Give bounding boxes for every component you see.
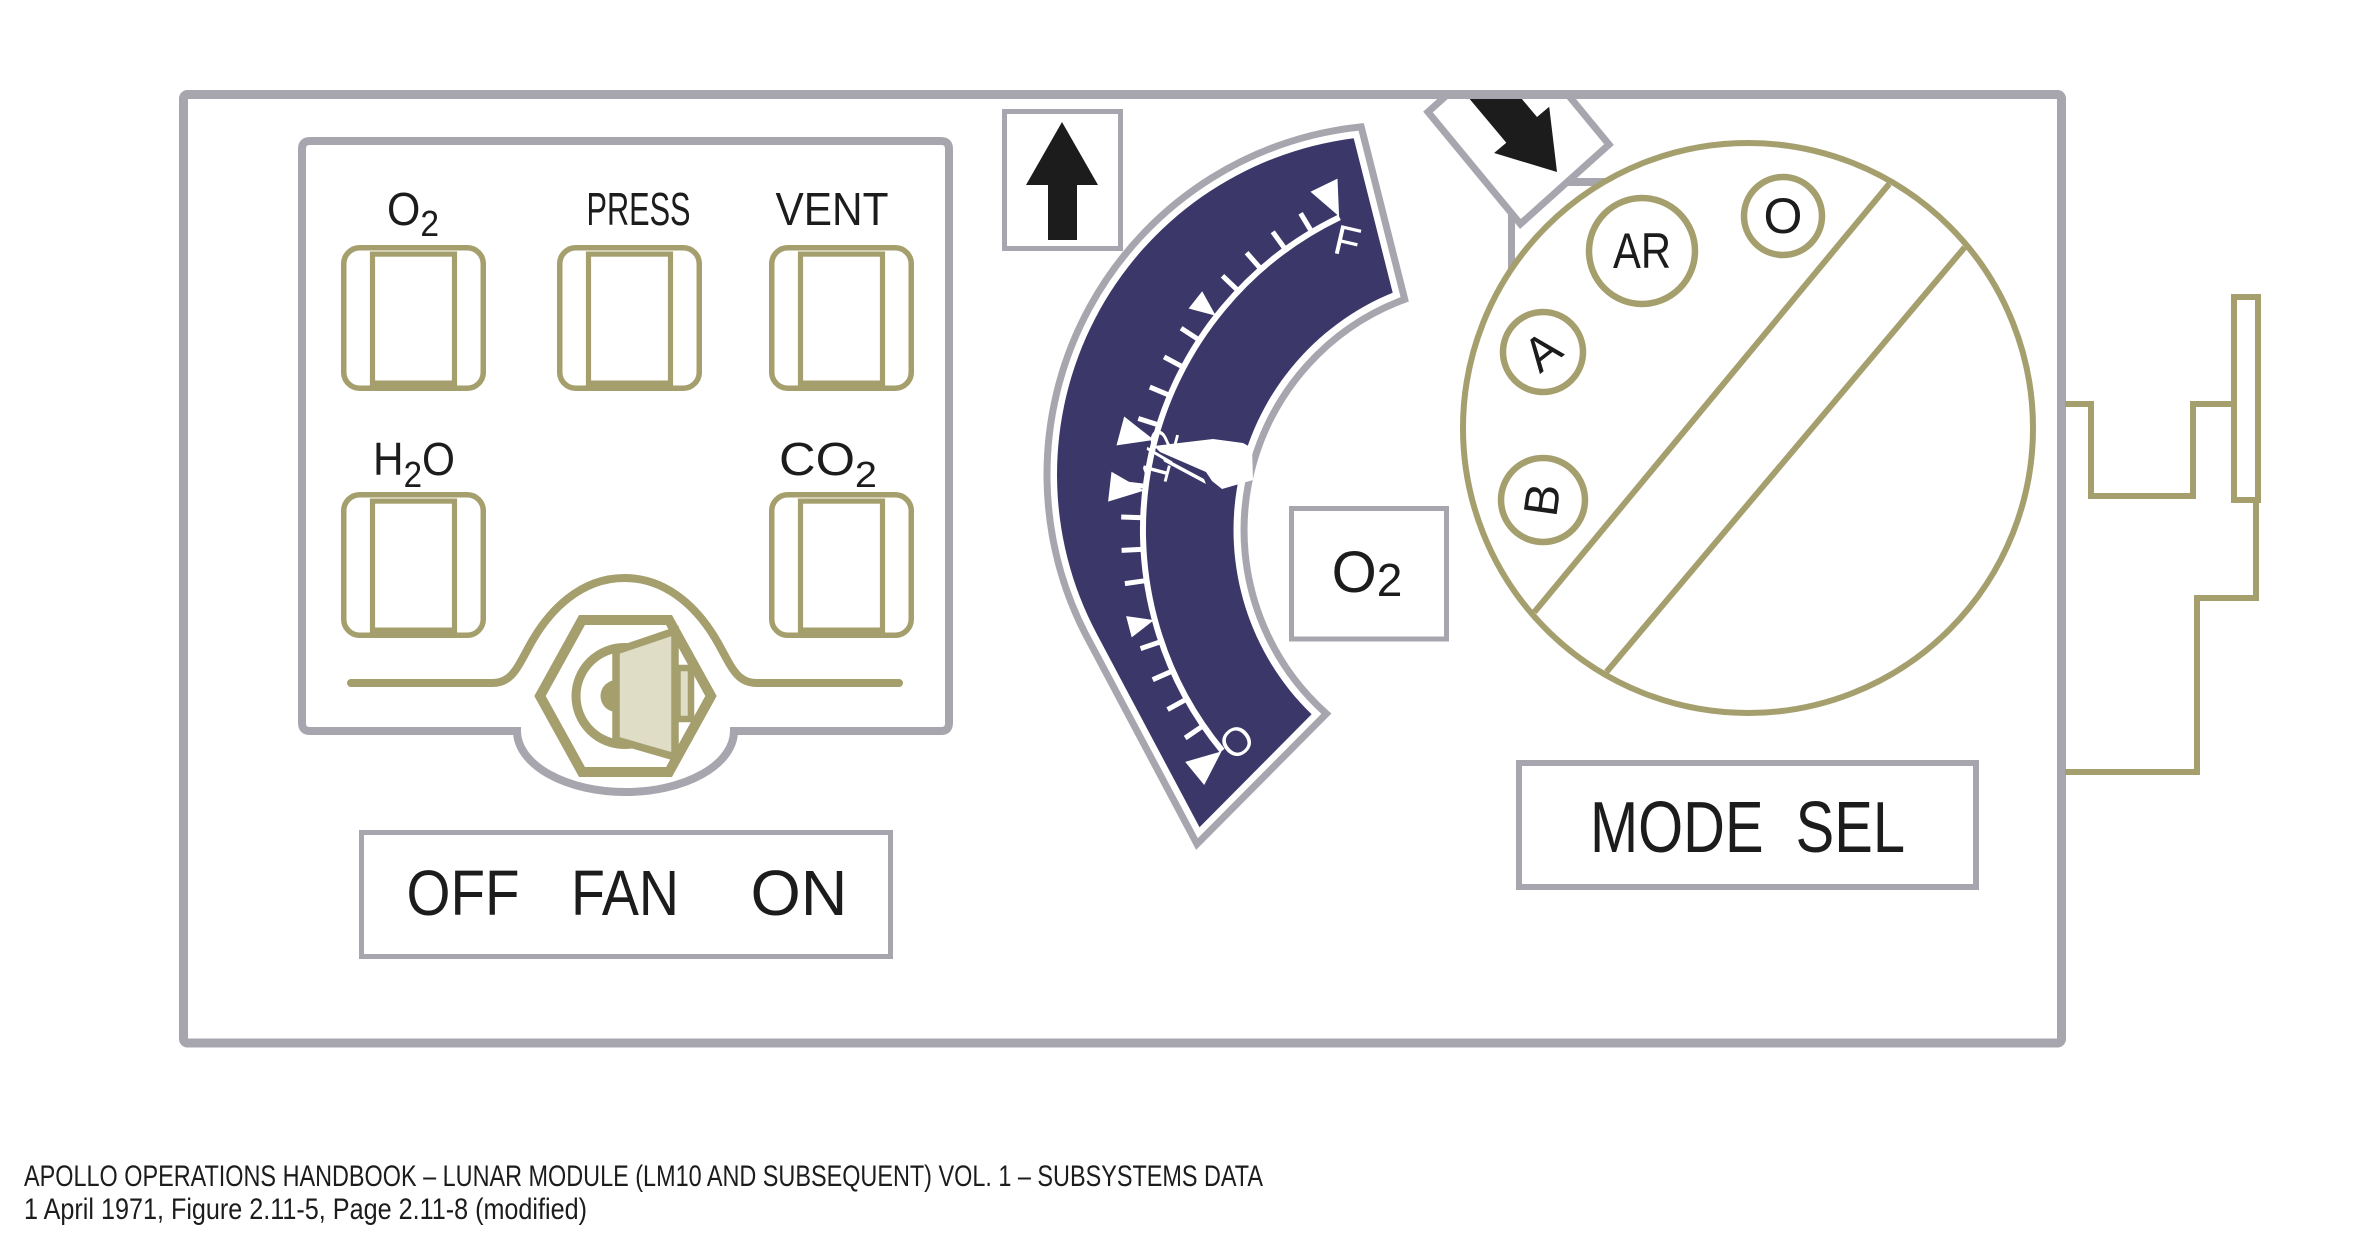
svg-text:ON: ON [751,857,848,929]
svg-text:APOLLO OPERATIONS HANDBOOK – L: APOLLO OPERATIONS HANDBOOK – LUNAR MODUL… [24,1160,1263,1193]
svg-text:1 April 1971, Figure 2.11-5, P: 1 April 1971, Figure 2.11-5, Page 2.11-8… [24,1193,587,1226]
svg-text:AR: AR [1613,223,1671,279]
svg-text:VENT: VENT [776,183,889,235]
svg-text:PRESS: PRESS [587,183,691,235]
svg-text:O: O [1764,188,1803,244]
svg-text:MODE SEL: MODE SEL [1590,788,1905,868]
svg-text:OFF: OFF [407,857,520,929]
svg-text:FAN: FAN [571,857,679,929]
